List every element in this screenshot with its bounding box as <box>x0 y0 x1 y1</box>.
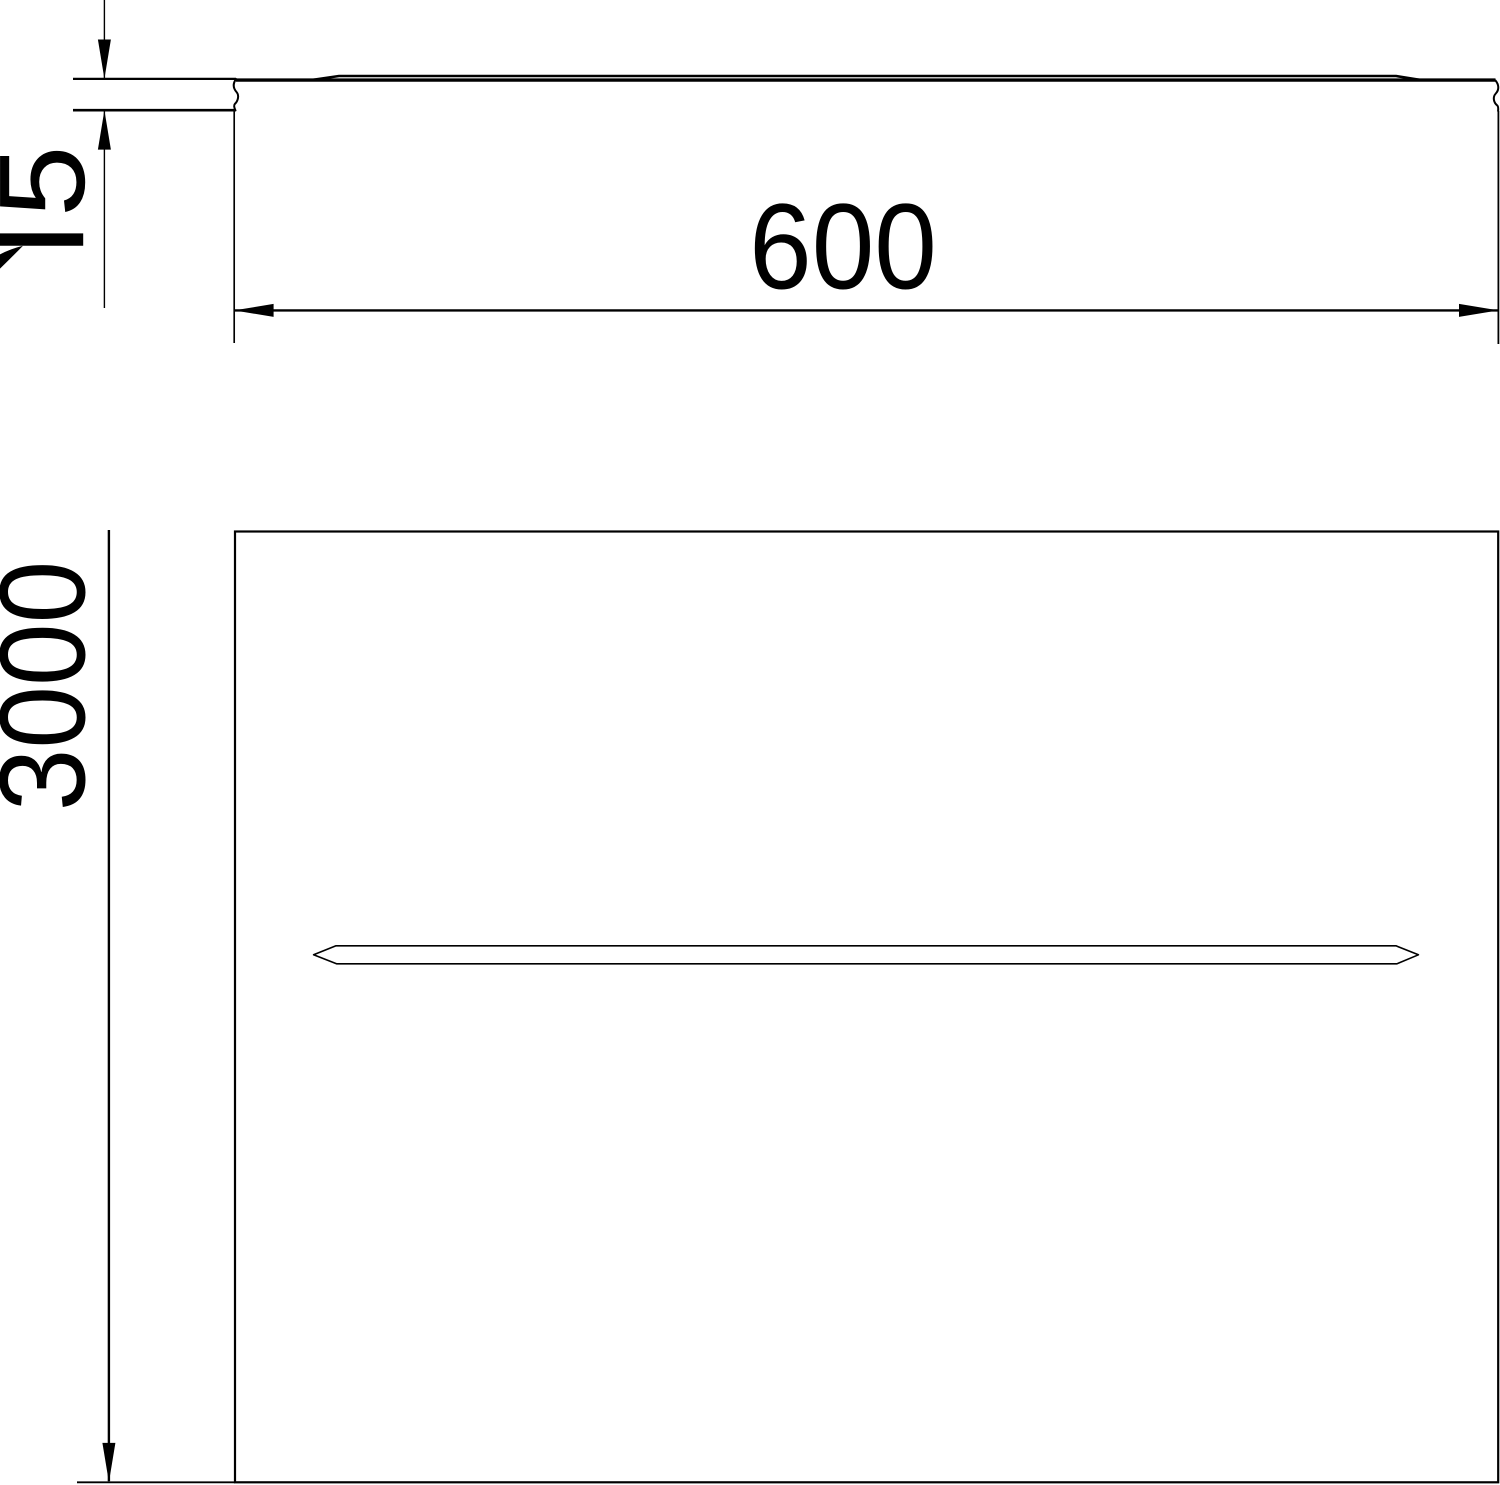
svg-text:600: 600 <box>749 178 937 314</box>
svg-text:3000: 3000 <box>0 561 110 811</box>
svg-text:5: 5 <box>0 145 110 217</box>
